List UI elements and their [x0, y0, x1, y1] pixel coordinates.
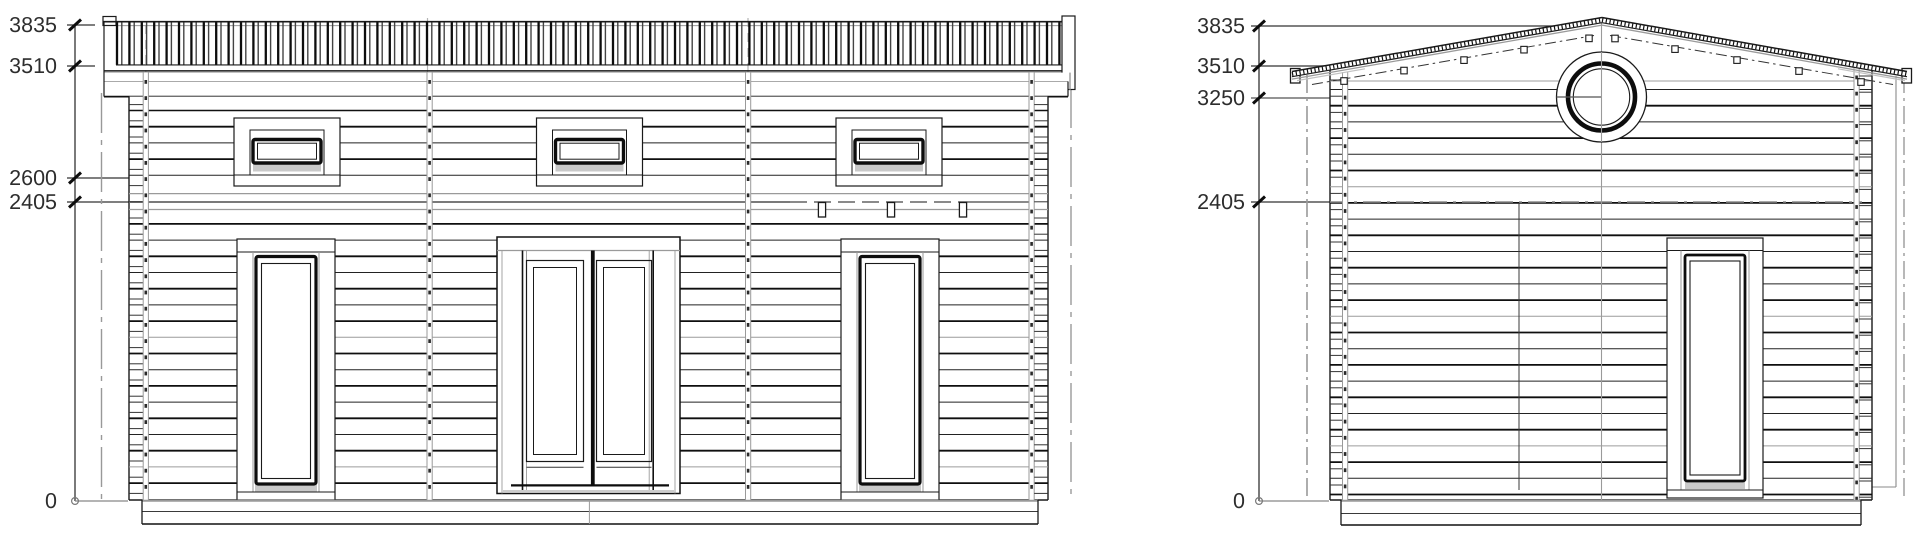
svg-text:2405: 2405 — [1197, 190, 1245, 214]
svg-text:0: 0 — [45, 489, 57, 513]
svg-text:3510: 3510 — [9, 54, 57, 78]
svg-text:3835: 3835 — [9, 13, 57, 37]
svg-text:2405: 2405 — [9, 190, 57, 214]
svg-text:3835: 3835 — [1197, 14, 1245, 38]
svg-text:2600: 2600 — [9, 166, 57, 190]
svg-text:3250: 3250 — [1197, 86, 1245, 110]
svg-text:0: 0 — [1233, 489, 1245, 513]
svg-text:3510: 3510 — [1197, 54, 1245, 78]
